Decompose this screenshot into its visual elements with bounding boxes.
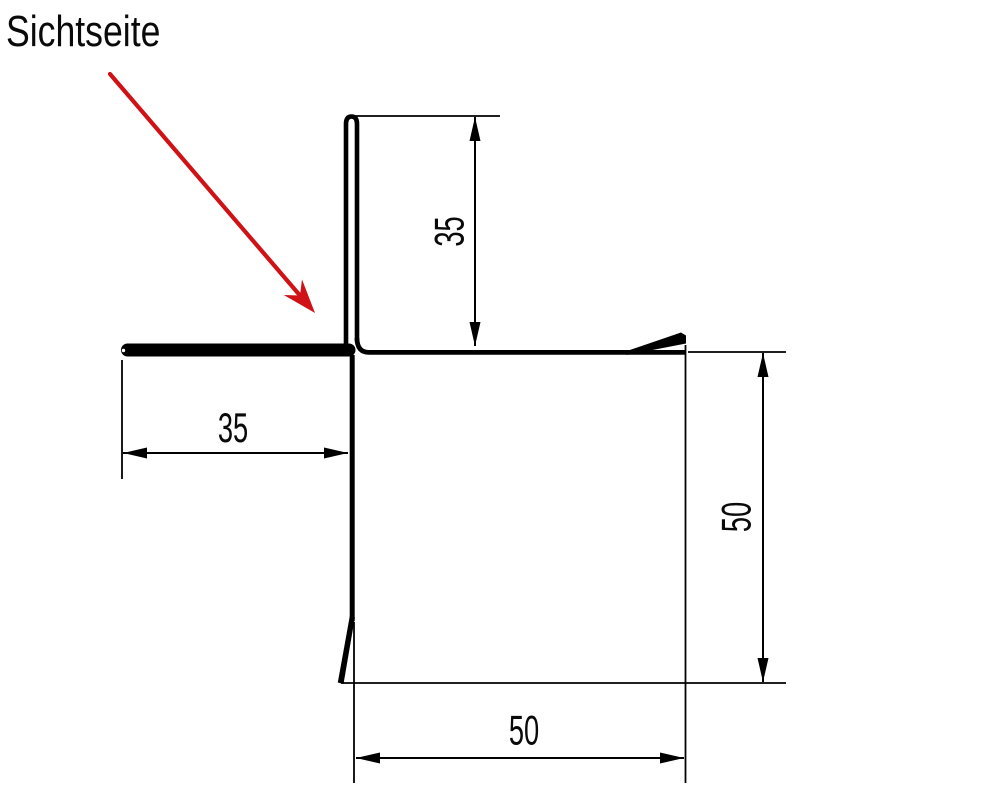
dimension-value-bottom-horizontal: 50 xyxy=(509,707,539,754)
profile-bottom-kick xyxy=(338,616,355,684)
arrowhead-right-icon xyxy=(660,753,684,764)
arrowhead-down-icon xyxy=(758,658,769,682)
arrowhead-up-icon xyxy=(470,117,481,141)
profile-left-hem-fold-gap xyxy=(122,349,125,352)
arrowhead-up-icon xyxy=(758,353,769,377)
dimension-value-left-horizontal: 35 xyxy=(218,404,248,451)
leader-arrow-shaft xyxy=(110,74,300,296)
visible-side-label: Sichtseite xyxy=(6,8,160,56)
profile-geometry xyxy=(122,117,686,685)
arrowhead-left-icon xyxy=(123,448,147,459)
dimension-value-top-vertical: 35 xyxy=(426,216,473,246)
dimension-value-right-vertical: 50 xyxy=(713,502,760,532)
arrowhead-left-icon xyxy=(356,753,380,764)
profile-top-hem-leg xyxy=(346,117,357,350)
arrowhead-right-icon xyxy=(324,448,348,459)
profile-drawing: 35 35 50 50 Sichtseite xyxy=(0,0,992,792)
visible-side-leader xyxy=(110,74,315,313)
arrowhead-down-icon xyxy=(470,322,481,346)
technical-drawing-canvas: 35 35 50 50 Sichtseite xyxy=(0,0,992,792)
